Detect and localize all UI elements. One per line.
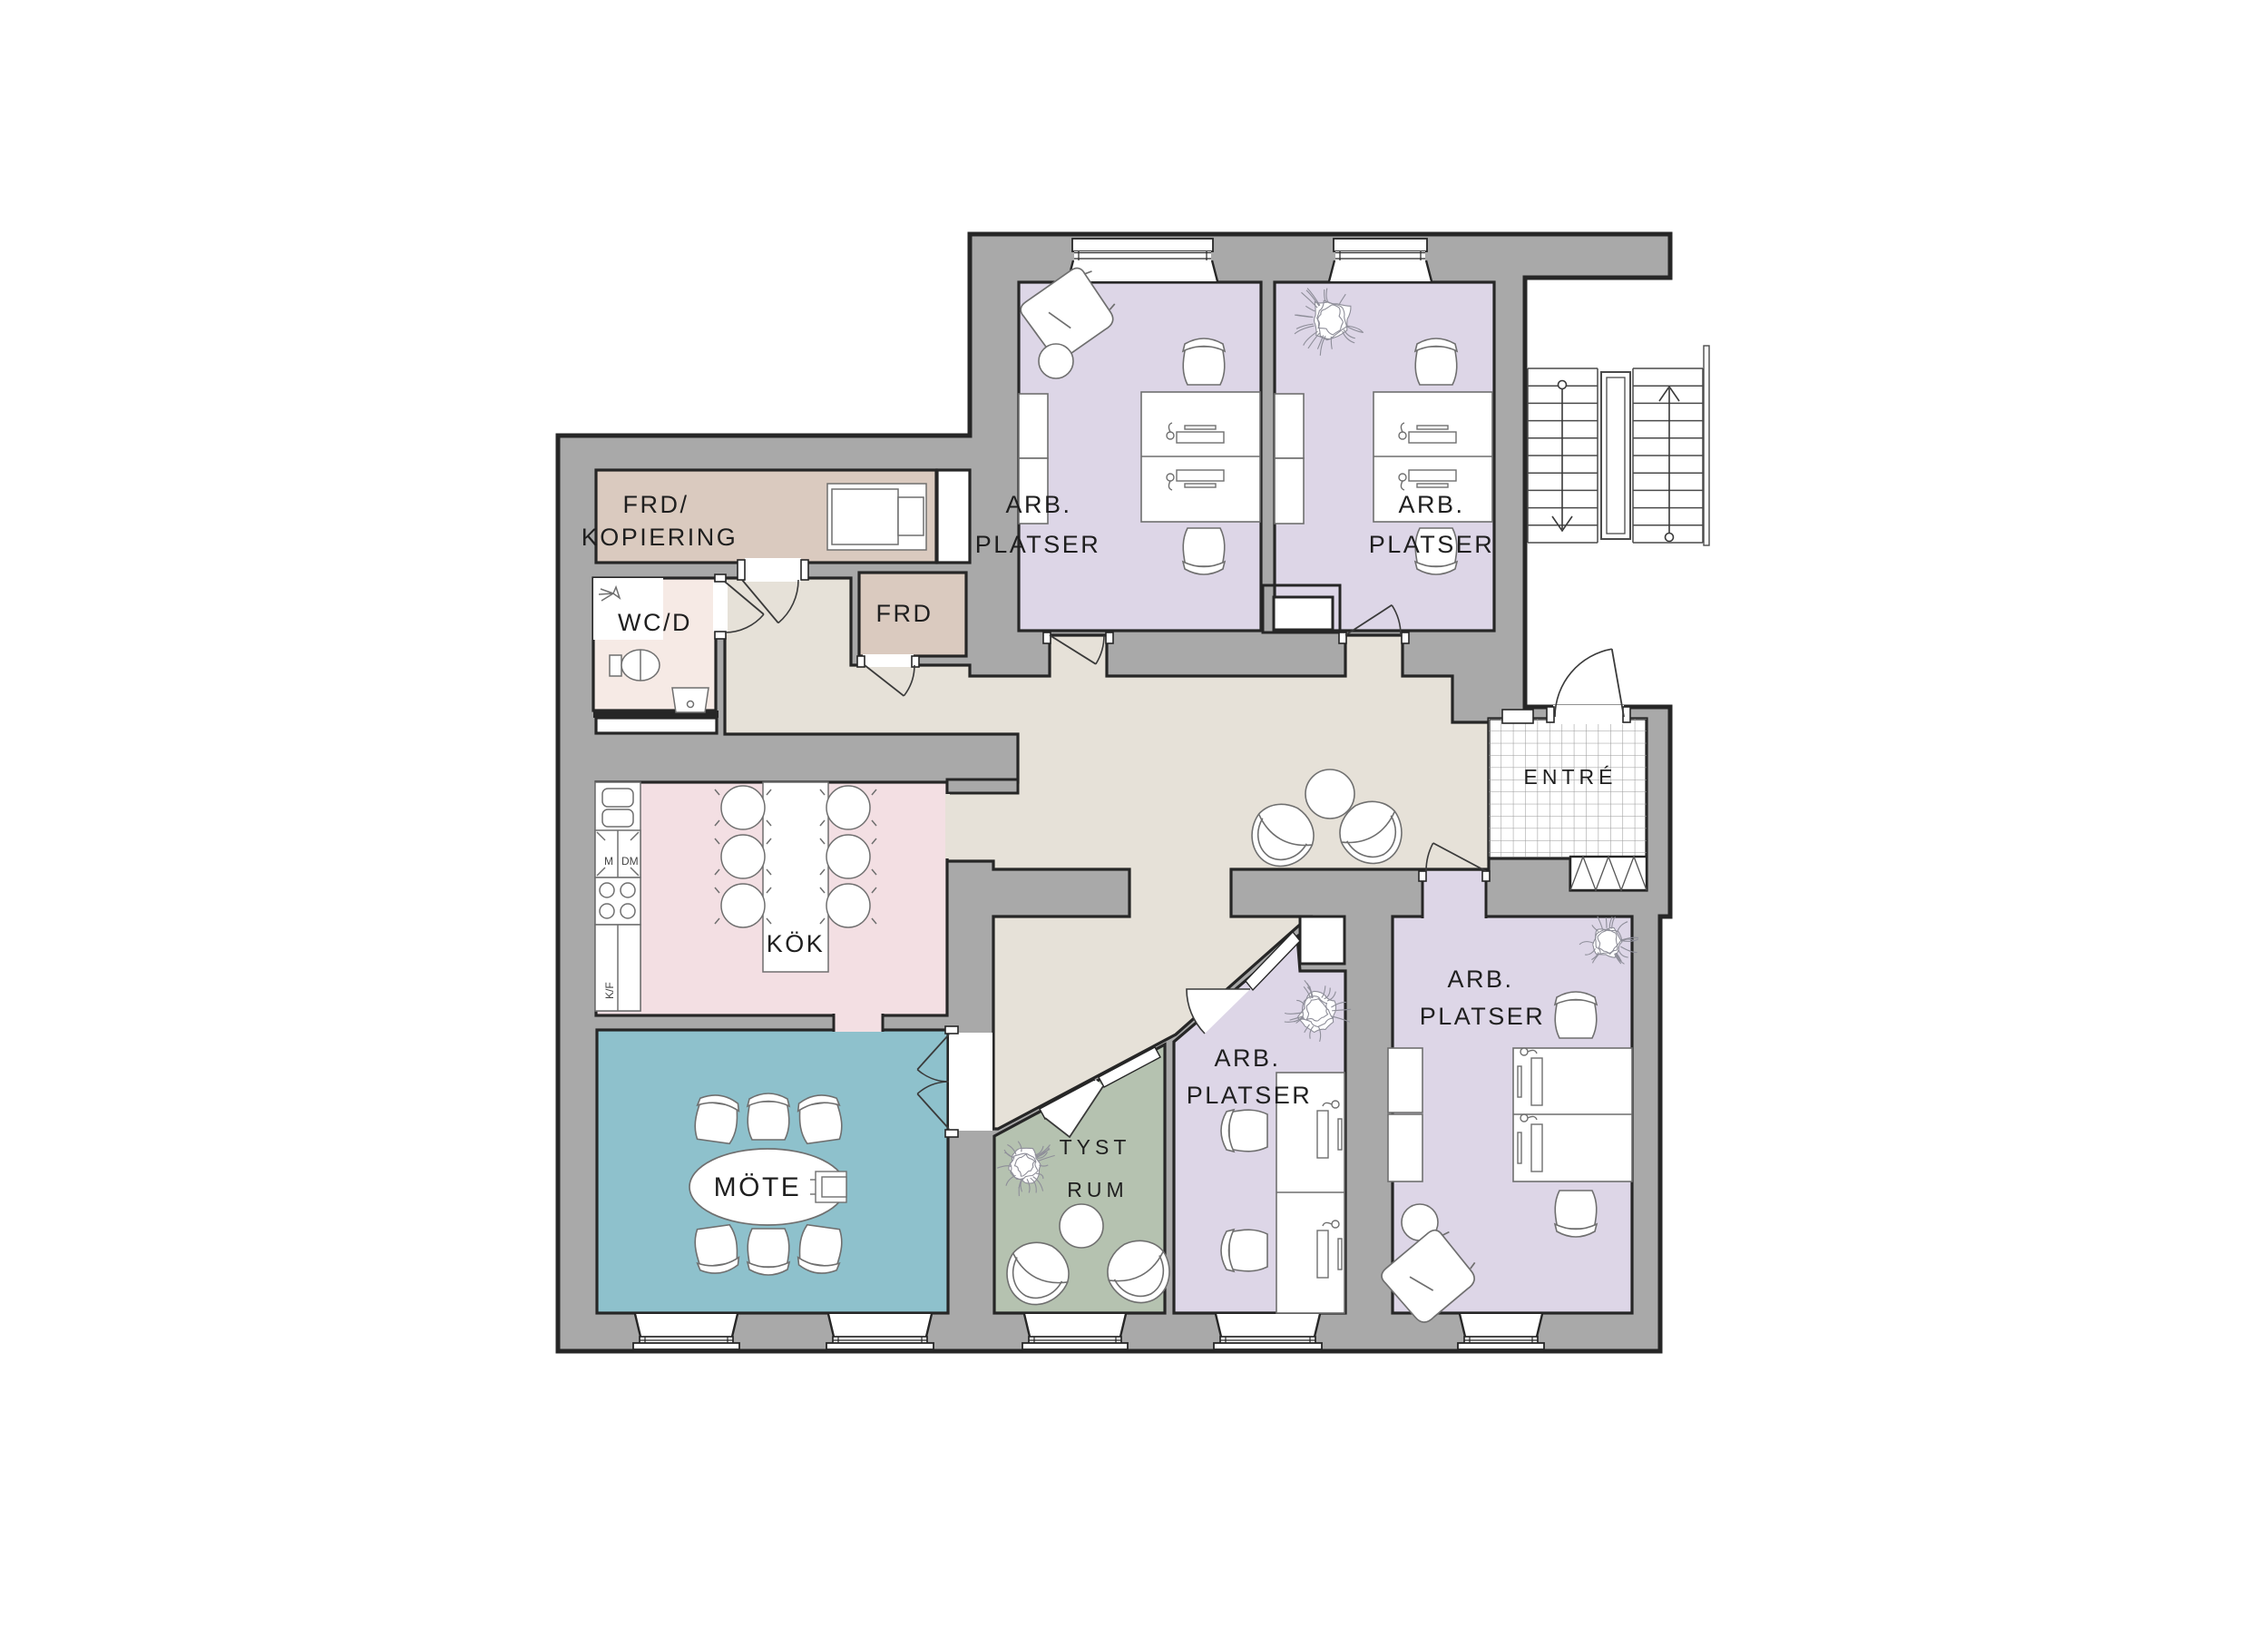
svg-text:PLATSER: PLATSER	[1187, 1082, 1313, 1109]
svg-text:PLATSER: PLATSER	[1420, 1003, 1546, 1030]
svg-text:PLATSER: PLATSER	[975, 531, 1101, 558]
svg-text:FRD/: FRD/	[623, 491, 689, 518]
svg-text:ARB.: ARB.	[1214, 1044, 1280, 1072]
svg-text:ENTRÉ: ENTRÉ	[1524, 765, 1618, 789]
svg-text:M: M	[604, 855, 613, 868]
svg-text:ARB.: ARB.	[1447, 966, 1513, 993]
svg-text:ARB.: ARB.	[1005, 491, 1071, 518]
svg-text:KÖK: KÖK	[767, 930, 826, 957]
svg-text:ARB.: ARB.	[1398, 491, 1464, 518]
svg-text:DM: DM	[621, 855, 639, 868]
svg-text:PLATSER: PLATSER	[1369, 531, 1495, 558]
svg-text:RUM: RUM	[1067, 1178, 1128, 1201]
svg-text:MÖTE: MÖTE	[714, 1172, 802, 1202]
svg-text:TYST: TYST	[1060, 1135, 1131, 1159]
svg-text:K/F: K/F	[603, 982, 616, 999]
svg-text:WC/D: WC/D	[618, 609, 692, 636]
svg-text:KOPIERING: KOPIERING	[582, 524, 738, 551]
svg-text:FRD: FRD	[876, 600, 934, 627]
